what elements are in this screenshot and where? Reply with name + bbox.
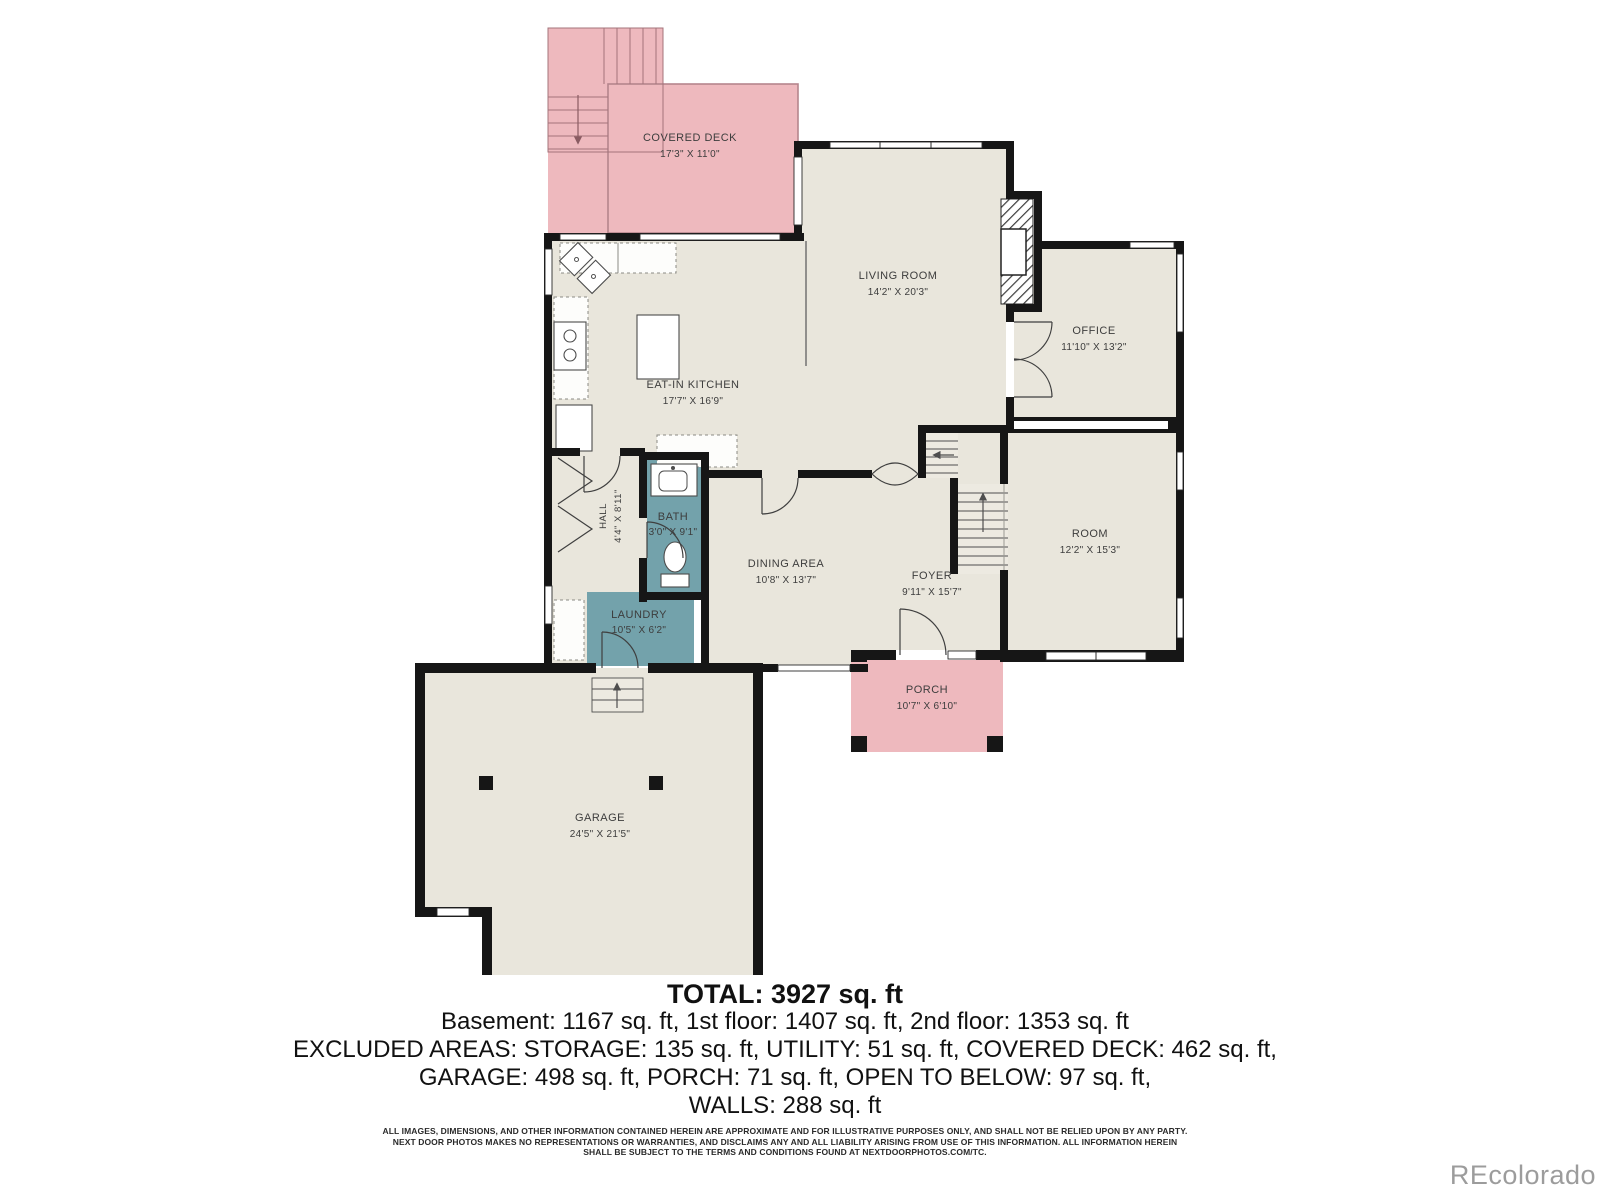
porch-post [851,736,867,752]
disclaimer: ALL IMAGES, DIMENSIONS, AND OTHER INFORM… [0,1126,1570,1158]
porch-label: PORCH [906,684,948,696]
floor-areas: Basement: 1167 sq. ft, 1st floor: 1407 s… [0,1008,1570,1036]
window [1177,598,1183,638]
living-room-label: LIVING ROOM [859,270,938,282]
window [545,249,552,295]
recolorado-watermark: REcolorado [1450,1160,1596,1191]
porch-dims: 10'7" X 6'10" [897,701,958,712]
kitchen-counter [657,435,737,467]
total-area: TOTAL: 3927 sq. ft [0,980,1570,1008]
disclaimer-line-2: NEXT DOOR PHOTOS MAKES NO REPRESENTATION… [0,1137,1570,1148]
disclaimer-line-3: SHALL BE SUBJECT TO THE TERMS AND CONDIT… [0,1147,1570,1158]
bath-dims: 3'0" X 9'1" [649,527,698,538]
hall-label: HALL [598,503,609,529]
window [545,586,552,624]
floor-plan-page: COVERED DECK 17'3" X 11'0" PORCH 10'7" X… [0,0,1600,1200]
stairs-main [958,484,1008,574]
living-room-dims: 14'2" X 20'3" [868,287,929,298]
window [437,908,469,916]
disclaimer-line-1: ALL IMAGES, DIMENSIONS, AND OTHER INFORM… [0,1126,1570,1137]
window [560,234,606,240]
hall-dims: 4'4" X 8'11" [613,489,624,543]
bath-label: BATH [658,511,689,523]
garage-label: GARAGE [575,812,625,824]
excluded-areas-2: GARAGE: 498 sq. ft, PORCH: 71 sq. ft, OP… [0,1064,1570,1092]
laundry-cabinet [554,600,584,660]
dining-label: DINING AREA [748,558,825,570]
excluded-areas-1: EXCLUDED AREAS: STORAGE: 135 sq. ft, UTI… [0,1036,1570,1064]
garage-dims: 24'5" X 21'5" [570,829,631,840]
room-floor [1004,433,1180,654]
laundry-dims: 10'5" X 6'2" [612,625,667,636]
floor-plan: COVERED DECK 17'3" X 11'0" PORCH 10'7" X… [0,0,1600,975]
stove [554,322,586,370]
window [1130,242,1174,248]
room-dims: 12'2" X 15'3" [1060,545,1121,556]
foyer-dims: 9'11" X 15'7" [902,587,962,598]
dining-dims: 10'8" X 13'7" [756,575,817,586]
walls-area: WALLS: 288 sq. ft [0,1092,1570,1120]
room-label: ROOM [1072,528,1108,540]
porch-area: PORCH 10'7" X 6'10" [851,650,1003,752]
covered-deck-area: COVERED DECK 17'3" X 11'0" [548,28,798,233]
window [794,157,802,225]
covered-deck-label: COVERED DECK [643,132,737,144]
kitchen-dims: 17'7" X 16'9" [663,396,724,407]
office-dims: 11'10" X 13'2" [1061,342,1127,353]
kitchen-label: EAT-IN KITCHEN [647,379,740,391]
toilet [661,542,689,587]
garage-steps [592,678,643,712]
fireplace [1001,199,1033,304]
stairs-basement [926,433,958,478]
window-sidelight [948,651,976,659]
refrigerator [556,405,592,451]
window [1177,452,1183,490]
window [1177,254,1183,332]
window [640,234,780,240]
area-summary: TOTAL: 3927 sq. ft Basement: 1167 sq. ft… [0,980,1570,1120]
window [778,665,850,671]
covered-deck-dims: 17'3" X 11'0" [660,149,720,160]
laundry-label: LAUNDRY [611,609,667,621]
garage-post [649,776,663,790]
window [830,142,982,148]
porch-post [987,736,1003,752]
foyer-label: FOYER [912,570,952,582]
office-label: OFFICE [1072,325,1115,337]
kitchen-island [637,315,679,379]
garage-post [479,776,493,790]
